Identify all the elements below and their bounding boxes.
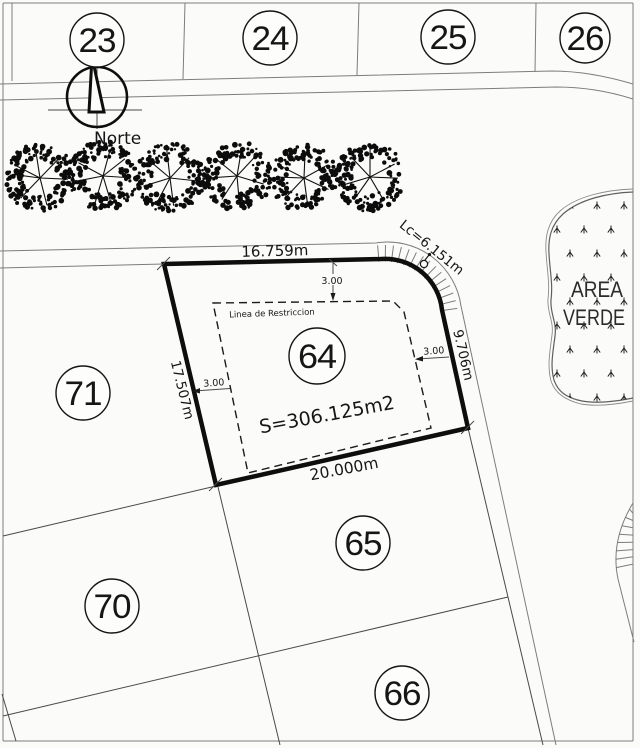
dim-top-edge: 16.759m: [241, 241, 309, 261]
lot-bubble-24: 24: [243, 11, 297, 65]
lot-64-label: 64: [298, 338, 336, 376]
green-area-label-1: AREA: [571, 277, 623, 302]
lot-24-label: 24: [252, 20, 289, 58]
lot-70-label: 70: [94, 588, 131, 626]
lot-bubble-70: 70: [85, 579, 139, 633]
lot-bubble-25: 25: [421, 10, 475, 64]
lot-26-label: 26: [567, 20, 604, 58]
lot-66-label: 66: [384, 675, 421, 713]
green-area-label-2: VERDE: [563, 305, 625, 330]
site-plan-drawing: AREA VERDE 16.759m Lc=6.151m 9.706m 17.5…: [0, 0, 640, 748]
site-plan-canvas: AREA VERDE 16.759m Lc=6.151m 9.706m 17.5…: [0, 0, 640, 748]
lot-bubble-64: 64: [289, 328, 345, 384]
lot-23-label: 23: [79, 22, 116, 60]
lot-bubble-26: 26: [560, 13, 610, 63]
setback-right-label: 3.00: [423, 345, 445, 357]
setback-top-label: 3.00: [321, 276, 342, 287]
lot-bubble-65: 65: [336, 516, 390, 570]
lot-71-label: 71: [65, 375, 102, 413]
lot-25-label: 25: [430, 19, 467, 57]
lot-65-label: 65: [345, 525, 382, 563]
north-label: Norte: [94, 129, 141, 149]
setback-left-label: 3.00: [203, 377, 225, 389]
lot-bubble-71: 71: [56, 366, 110, 420]
lot-bubble-66: 66: [375, 666, 429, 720]
lot-bubble-23: 23: [70, 13, 124, 67]
